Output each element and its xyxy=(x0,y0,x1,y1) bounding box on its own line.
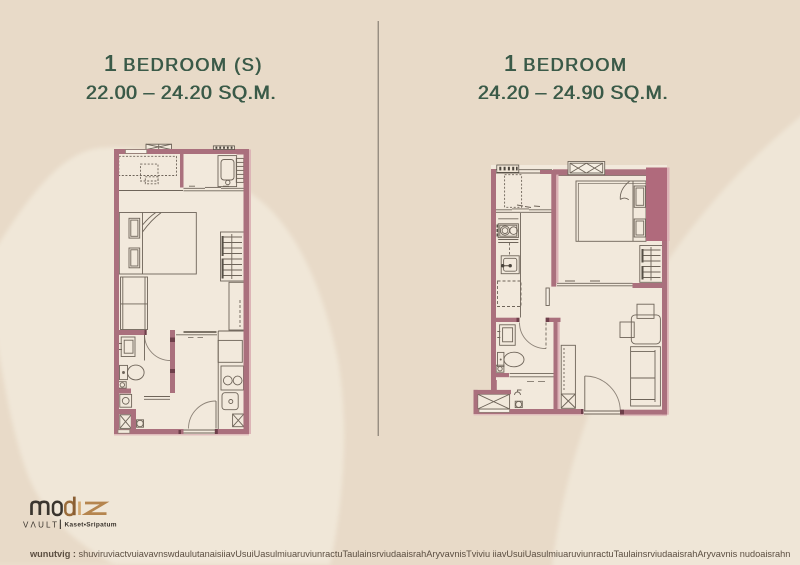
svg-text:VΛULT: VΛULT xyxy=(23,520,59,529)
svg-text:Kaset•Sripatum: Kaset•Sripatum xyxy=(65,522,117,529)
